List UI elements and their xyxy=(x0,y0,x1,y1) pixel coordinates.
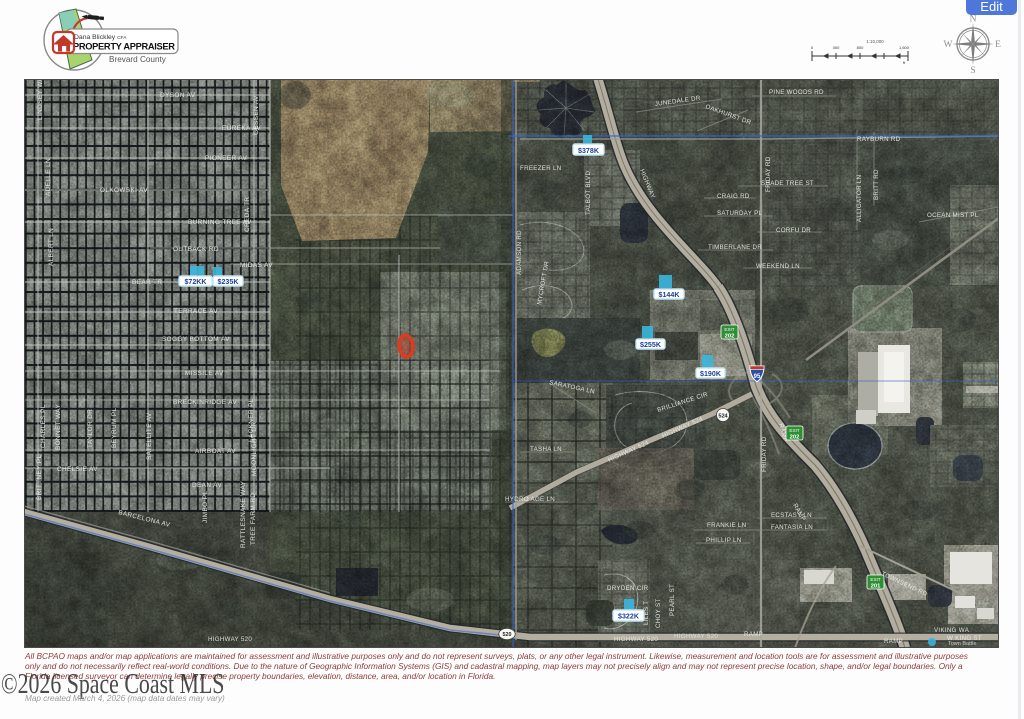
svg-text:BRITTNEY PL: BRITTNEY PL xyxy=(36,454,43,500)
svg-text:DYSON AV: DYSON AV xyxy=(160,92,196,99)
svg-text:202: 202 xyxy=(725,334,735,340)
svg-text:524: 524 xyxy=(718,413,728,419)
svg-text:$144K: $144K xyxy=(659,291,681,299)
svg-text:TREE FARM RD: TREE FARM RD xyxy=(250,493,257,545)
svg-text:HIGHWAY 520: HIGHWAY 520 xyxy=(208,636,252,643)
svg-text:BEAR TR: BEAR TR xyxy=(132,279,162,286)
svg-text:E: E xyxy=(995,40,1001,50)
svg-text:FREEZER LN: FREEZER LN xyxy=(520,165,562,172)
svg-text:MIDAS AV: MIDAS AV xyxy=(240,262,273,269)
svg-text:ft: ft xyxy=(903,60,906,65)
svg-text:1,600: 1,600 xyxy=(899,45,910,50)
svg-text:SATURDAY PL: SATURDAY PL xyxy=(717,210,763,217)
svg-text:OLKOWSKI AV: OLKOWSKI AV xyxy=(100,187,148,194)
svg-text:RAYBURN RD: RAYBURN RD xyxy=(857,136,901,143)
svg-text:SATELLITE AV: SATELLITE AV xyxy=(146,412,153,460)
svg-text:SOGGY BOTTOM AV: SOGGY BOTTOM AV xyxy=(162,336,230,343)
svg-text:AIRBOAT AV: AIRBOAT AV xyxy=(195,448,236,455)
svg-text:LACKNER PL: LACKNER PL xyxy=(248,398,255,442)
svg-text:202: 202 xyxy=(790,435,800,441)
svg-text:EXIT: EXIT xyxy=(789,428,799,433)
svg-text:ADAMSON RD: ADAMSON RD xyxy=(516,230,523,275)
svg-text:PEARL ST: PEARL ST xyxy=(669,584,676,616)
svg-text:0: 0 xyxy=(811,45,814,50)
svg-text:LINDSEY WAY: LINDSEY WAY xyxy=(37,79,44,120)
svg-text:$235K: $235K xyxy=(218,278,240,286)
svg-text:PHILLIP LN: PHILLIP LN xyxy=(706,537,742,544)
svg-text:TASHA LN: TASHA LN xyxy=(530,446,562,453)
svg-text:S: S xyxy=(970,66,975,74)
svg-text:OUTBACK RD: OUTBACK RD xyxy=(173,246,219,253)
svg-text:TERRACE AV: TERRACE AV xyxy=(174,308,218,315)
svg-text:N: N xyxy=(970,15,977,25)
svg-text:201: 201 xyxy=(871,584,881,590)
svg-text:MISSILE AV: MISSILE AV xyxy=(185,370,224,377)
svg-text:RAMP: RAMP xyxy=(884,638,903,645)
svg-text:CRAIG RD: CRAIG RD xyxy=(717,193,750,200)
svg-text:VIKING WA: VIKING WA xyxy=(934,627,970,634)
svg-text:CHARLES PL: CHARLES PL xyxy=(40,404,47,448)
svg-text:RAMP: RAMP xyxy=(744,631,763,638)
svg-text:$72KK: $72KK xyxy=(184,278,207,286)
svg-text:$190K: $190K xyxy=(700,370,722,378)
svg-text:DRYDEN CIR: DRYDEN CIR xyxy=(607,585,649,592)
svg-text:Brevard County: Brevard County xyxy=(109,55,167,64)
svg-text:BEYRUM PL: BEYRUM PL xyxy=(111,407,118,448)
svg-text:W: W xyxy=(944,40,953,50)
svg-text:ADELLE LN: ADELLE LN xyxy=(45,158,52,196)
svg-text:OCEAN MIST PL: OCEAN MIST PL xyxy=(927,212,979,219)
svg-text:$322K: $322K xyxy=(618,613,640,621)
svg-text:PINE WOODS RD: PINE WOODS RD xyxy=(769,89,824,96)
svg-text:RATTLESNAKE WAY: RATTLESNAKE WAY xyxy=(240,480,247,548)
svg-text:HIGHWAY 520: HIGHWAY 520 xyxy=(614,636,658,643)
svg-text:520: 520 xyxy=(503,632,512,638)
svg-text:$255K: $255K xyxy=(640,341,662,349)
svg-text:HYDRO AGE LN: HYDRO AGE LN xyxy=(505,496,555,503)
svg-text:TIMBERLANE DR: TIMBERLANE DR xyxy=(708,244,762,251)
svg-text:TAYLOR DR: TAYLOR DR xyxy=(87,409,94,448)
svg-text:FRIDAY RD: FRIDAY RD xyxy=(761,436,768,472)
svg-text:CORFU DR: CORFU DR xyxy=(776,227,811,234)
svg-text:Town Battle: Town Battle xyxy=(948,641,976,647)
svg-text:HIGHWAY 520: HIGHWAY 520 xyxy=(674,633,718,640)
svg-text:1:10,000: 1:10,000 xyxy=(866,39,884,44)
svg-text:BURNING TREE AV: BURNING TREE AV xyxy=(188,219,252,226)
svg-text:CREDA TR: CREDA TR xyxy=(244,197,251,232)
svg-text:WEEKEND LN: WEEKEND LN xyxy=(756,263,800,270)
svg-text:PROPERTY APPRAISER: PROPERTY APPRAISER xyxy=(73,42,175,52)
svg-text:FANTASIA LN: FANTASIA LN xyxy=(771,524,813,531)
svg-text:BRITT RD: BRITT RD xyxy=(873,169,880,200)
svg-text:95: 95 xyxy=(754,374,761,380)
svg-text:400: 400 xyxy=(833,45,840,50)
svg-text:$378K: $378K xyxy=(578,147,600,155)
svg-text:ALBERT LN: ALBERT LN xyxy=(48,228,55,266)
svg-text:BONNET WAY: BONNET WAY xyxy=(55,404,62,450)
svg-text:BRECKINRIDGE AV: BRECKINRIDGE AV xyxy=(173,399,237,406)
svg-text:TALBOT BLVD: TALBOT BLVD xyxy=(585,171,592,215)
svg-text:DEAN AV: DEAN AV xyxy=(192,482,222,489)
svg-text:GESSEN AV: GESSEN AV xyxy=(253,95,260,135)
svg-text:FRIDAY RD: FRIDAY RD xyxy=(765,156,772,192)
svg-text:800: 800 xyxy=(857,45,864,50)
svg-text:CHELSIE AV: CHELSIE AV xyxy=(57,466,98,473)
svg-text:FRANKIE LN: FRANKIE LN xyxy=(707,522,746,529)
svg-text:PIONEER AV: PIONEER AV xyxy=(205,155,248,162)
svg-text:ALLIGATOR LN: ALLIGATOR LN xyxy=(856,175,863,222)
svg-text:JIMBO PL: JIMBO PL xyxy=(202,491,209,523)
svg-text:Dana Blickley CFA: Dana Blickley CFA xyxy=(74,34,127,41)
svg-text:EXIT: EXIT xyxy=(724,327,734,332)
svg-text:EXIT: EXIT xyxy=(870,577,880,582)
svg-text:CHOY ST: CHOY ST xyxy=(655,599,662,629)
